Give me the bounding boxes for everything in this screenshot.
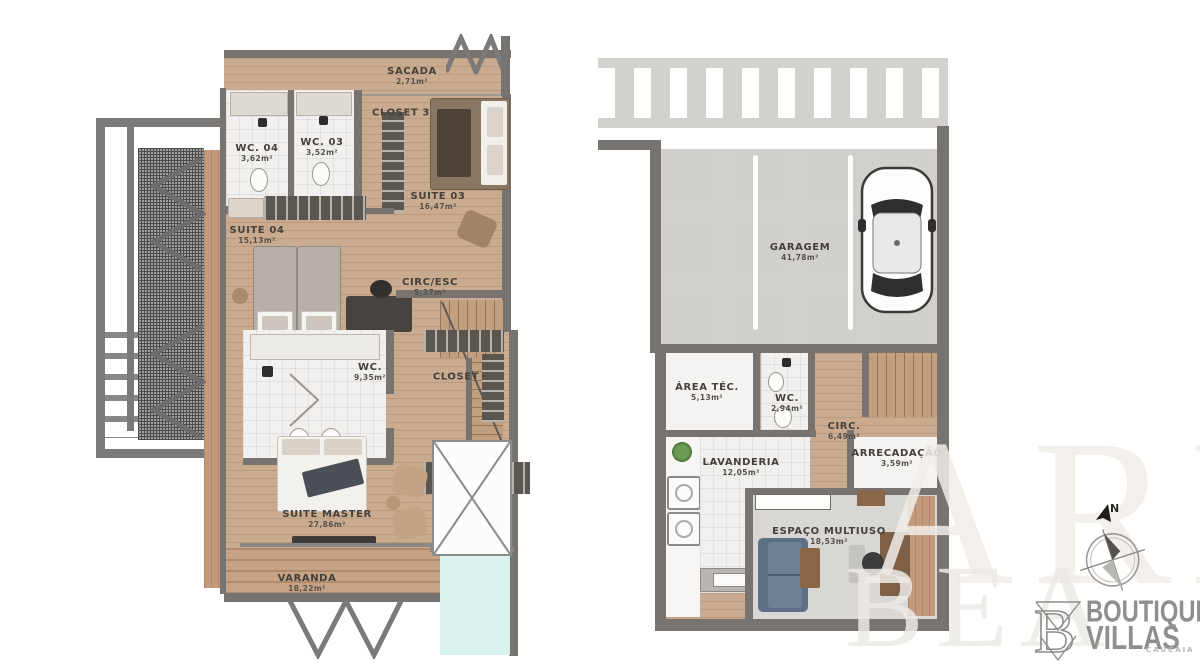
varanda-rail xyxy=(240,543,445,547)
master-side-table xyxy=(386,496,400,510)
pool xyxy=(440,552,510,655)
closet-wardrobe-side xyxy=(482,354,504,422)
room-area: 6,49m² xyxy=(828,432,861,441)
room-name: ARRECADAÇÃO xyxy=(851,448,942,459)
master-chair-2 xyxy=(392,505,429,540)
room-area: 18,53m² xyxy=(772,537,886,546)
wc03-vanity xyxy=(296,92,352,116)
room-name: SUITE MASTER xyxy=(282,509,372,520)
suite04-side-table xyxy=(232,288,248,304)
room-label-espaco-multiuso: ESPAÇO MULTIUSO18,53m² xyxy=(772,526,886,546)
room-area: 9,35m² xyxy=(354,373,386,382)
wc-shower-icon xyxy=(782,358,791,367)
wc04-shower-icon xyxy=(258,118,267,127)
room-area: 3,59m² xyxy=(851,459,942,468)
driveway-pergola xyxy=(598,58,948,128)
room-label-lavanderia: LAVANDERIA12,05m² xyxy=(703,457,780,477)
suite04-wardrobe xyxy=(264,196,366,220)
room-label-wc-master: WC.9,35m² xyxy=(354,362,386,382)
room-label-closet3: CLOSET 3 xyxy=(372,107,430,119)
wc04-vanity xyxy=(230,92,288,116)
zigzag-symbol-left xyxy=(148,158,206,438)
room-name: ÁREA TÉC. xyxy=(675,382,739,393)
room-area: 27,86m² xyxy=(282,520,372,529)
wall-garage-stub xyxy=(598,140,656,150)
wc-sink xyxy=(768,372,784,392)
room-name: WC. 03 xyxy=(300,137,343,148)
wall-suite03-stub xyxy=(362,208,394,214)
room-name: WC. 04 xyxy=(235,143,278,154)
room-area: 12,05m² xyxy=(703,468,780,477)
upper-floor-plan: SACADA2,71m² CLOSET 3 WC. 043,62m² WC. 0… xyxy=(0,0,560,671)
wall-bath-right-b xyxy=(386,428,394,462)
room-name: SACADA xyxy=(387,66,437,77)
room-area: 18,22m² xyxy=(278,584,337,593)
wall-espaco-left xyxy=(745,492,753,620)
parking-line-1 xyxy=(753,155,758,330)
zigzag-symbol-top xyxy=(446,34,506,74)
suite04-desk xyxy=(346,296,412,332)
cabinet xyxy=(857,490,885,506)
wall-wc-right xyxy=(808,353,815,437)
bath-counter xyxy=(250,334,380,360)
room-label-arrecadacao: ARRECADAÇÃO3,59m² xyxy=(851,448,942,468)
room-label-garagem: GARAGEM41,78m² xyxy=(770,242,831,262)
wall-bottom xyxy=(655,619,945,631)
suite03-bed xyxy=(430,98,510,190)
wall-areatec-bottom xyxy=(666,430,816,437)
zigzag-symbol-bottom xyxy=(288,601,403,659)
room-label-closet: CLOSET xyxy=(433,371,479,383)
room-name: CIRC. xyxy=(828,421,861,432)
plant xyxy=(672,442,692,462)
room-label-circ: CIRC.6,49m² xyxy=(828,421,861,441)
wall-lower-left xyxy=(655,344,666,631)
master-bed xyxy=(277,436,367,512)
room-label-suite03: SUITE 0316,47m² xyxy=(411,191,466,211)
room-label-wc04: WC. 043,62m² xyxy=(235,143,278,163)
wall-garage-left xyxy=(650,140,661,353)
room-area: 5,37m² xyxy=(402,288,458,297)
suite04-stool xyxy=(370,280,392,298)
stairs-ground xyxy=(868,353,937,417)
wall-bath-right-a xyxy=(386,330,394,394)
room-label-varanda: VARANDA18,22m² xyxy=(278,573,337,593)
dryer xyxy=(667,512,701,546)
coffee-table xyxy=(800,548,820,588)
desk-chair xyxy=(862,552,884,574)
wall-stair-left xyxy=(862,353,868,417)
wc03-toilet xyxy=(312,162,330,186)
washer xyxy=(667,476,701,510)
compass-north-label: N xyxy=(1110,502,1119,515)
room-name: LAVANDERIA xyxy=(703,457,780,468)
room-name: SUITE 04 xyxy=(230,225,285,236)
room-area: 2,71m² xyxy=(387,77,437,86)
room-label-wc-ground: WC.2,94m² xyxy=(771,393,803,413)
room-name: VARANDA xyxy=(278,573,337,584)
room-area: 41,78m² xyxy=(770,253,831,262)
post-top-right xyxy=(501,36,510,96)
room-label-circ-esc: CIRC/ESC5,37m² xyxy=(402,277,458,297)
shower-door-chevron xyxy=(288,372,322,428)
espaco-side-shelf xyxy=(908,496,935,616)
closet-wardrobe-top xyxy=(424,330,504,352)
void-shaft xyxy=(432,440,512,556)
twin-bed-1 xyxy=(253,246,297,338)
wall-right xyxy=(937,126,949,631)
room-name: GARAGEM xyxy=(770,242,831,253)
wall-wc-sep xyxy=(288,90,294,208)
window-sill xyxy=(755,494,831,510)
room-name: CLOSET 3 xyxy=(372,107,430,118)
brand-logo: B BOUTIQUE VILLAS CAUCAIA xyxy=(1028,594,1200,668)
room-name: CLOSET xyxy=(433,371,479,382)
room-name: WC. xyxy=(358,362,382,373)
wall-garage-bottom xyxy=(655,344,939,353)
twin-bed-2 xyxy=(297,246,341,338)
room-name: CIRC/ESC xyxy=(402,277,458,288)
room-area: 3,52m² xyxy=(300,148,343,157)
parking-line-2 xyxy=(848,155,853,330)
room-name: SUITE 03 xyxy=(411,191,466,202)
car-top-view xyxy=(858,165,936,315)
wall-wc03-right xyxy=(354,90,362,212)
closet3-wardrobe xyxy=(382,112,404,212)
room-area: 5,13m² xyxy=(675,393,739,402)
compass-icon: N xyxy=(1066,498,1158,598)
wc04-toilet xyxy=(250,168,268,192)
room-label-wc03: WC. 033,52m² xyxy=(300,137,343,157)
room-label-area-tec: ÁREA TÉC.5,13m² xyxy=(675,382,739,402)
floor-plan-sheet: SACADA2,71m² CLOSET 3 WC. 043,62m² WC. 0… xyxy=(0,0,1200,671)
wall-areatec-right xyxy=(753,353,760,437)
room-label-sacada: SACADA2,71m² xyxy=(387,66,437,86)
logo-sub-label: CAUCAIA xyxy=(1146,646,1195,654)
room-area: 16,47m² xyxy=(411,202,466,211)
room-label-suite-master: SUITE MASTER27,86m² xyxy=(282,509,372,529)
room-area: 3,62m² xyxy=(235,154,278,163)
room-area: 2,94m² xyxy=(771,404,803,413)
ground-floor-plan: GARAGEM41,78m² ÁREA TÉC.5,13m² WC.2,94m²… xyxy=(560,0,980,671)
room-area: 15,13m² xyxy=(230,236,285,245)
bath-shower-icon xyxy=(262,366,273,377)
wc03-shower-icon xyxy=(319,116,328,125)
room-name: WC. xyxy=(775,393,799,404)
suite04-counter xyxy=(228,198,264,218)
room-name: ESPAÇO MULTIUSO xyxy=(772,526,886,537)
room-label-suite04: SUITE 0415,13m² xyxy=(230,225,285,245)
logo-monogram-icon: B xyxy=(1028,596,1090,666)
